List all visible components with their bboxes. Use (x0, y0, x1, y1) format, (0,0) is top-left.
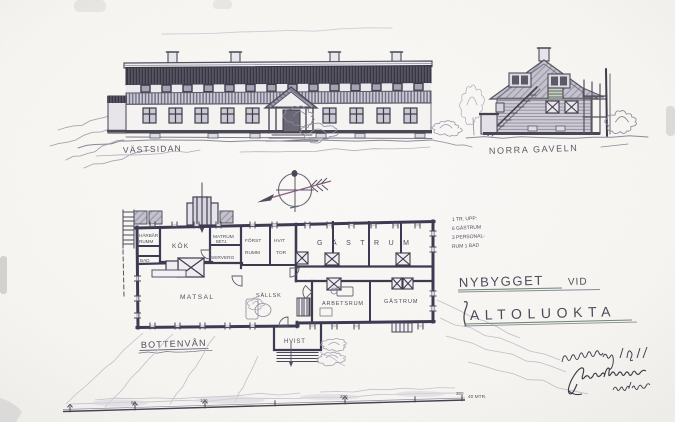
svg-text:GÄSTRUM: GÄSTRUM (384, 298, 419, 305)
svg-text:RUMM: RUMM (245, 250, 260, 256)
svg-text:MATSAL: MATSAL (180, 294, 215, 301)
svg-text:VID: VID (568, 276, 588, 288)
svg-text:HÄRBÄR: HÄRBÄR (139, 232, 159, 238)
svg-text:BETJ.: BETJ. (216, 239, 227, 244)
svg-text:ARBETSRUM: ARBETSRUM (322, 301, 364, 307)
svg-text:TOR: TOR (276, 250, 287, 256)
svg-text:KÖK: KÖK (172, 242, 189, 250)
svg-text:SÄLLSK: SÄLLSK (256, 292, 282, 299)
svg-text:GÄSTRUM: GÄSTRUM (317, 239, 419, 247)
svg-text:100: 100 (200, 398, 208, 403)
svg-text:200: 200 (340, 394, 348, 399)
svg-text:NYBYGGET: NYBYGGET (459, 273, 544, 290)
svg-text:BAD: BAD (140, 258, 150, 263)
svg-text:50: 50 (131, 400, 137, 405)
svg-text:VÄSTSIDAN: VÄSTSIDAN (123, 143, 182, 155)
svg-text:SERVERG: SERVERG (211, 255, 235, 261)
svg-text:40 MTR.: 40 MTR. (468, 394, 486, 400)
svg-text:RUMM: RUMM (139, 239, 153, 244)
svg-text:300: 300 (456, 391, 464, 396)
svg-text:HVIST: HVIST (284, 339, 306, 345)
svg-text:FÖRST: FÖRST (245, 237, 261, 244)
svg-text:HVIT: HVIT (274, 238, 285, 244)
